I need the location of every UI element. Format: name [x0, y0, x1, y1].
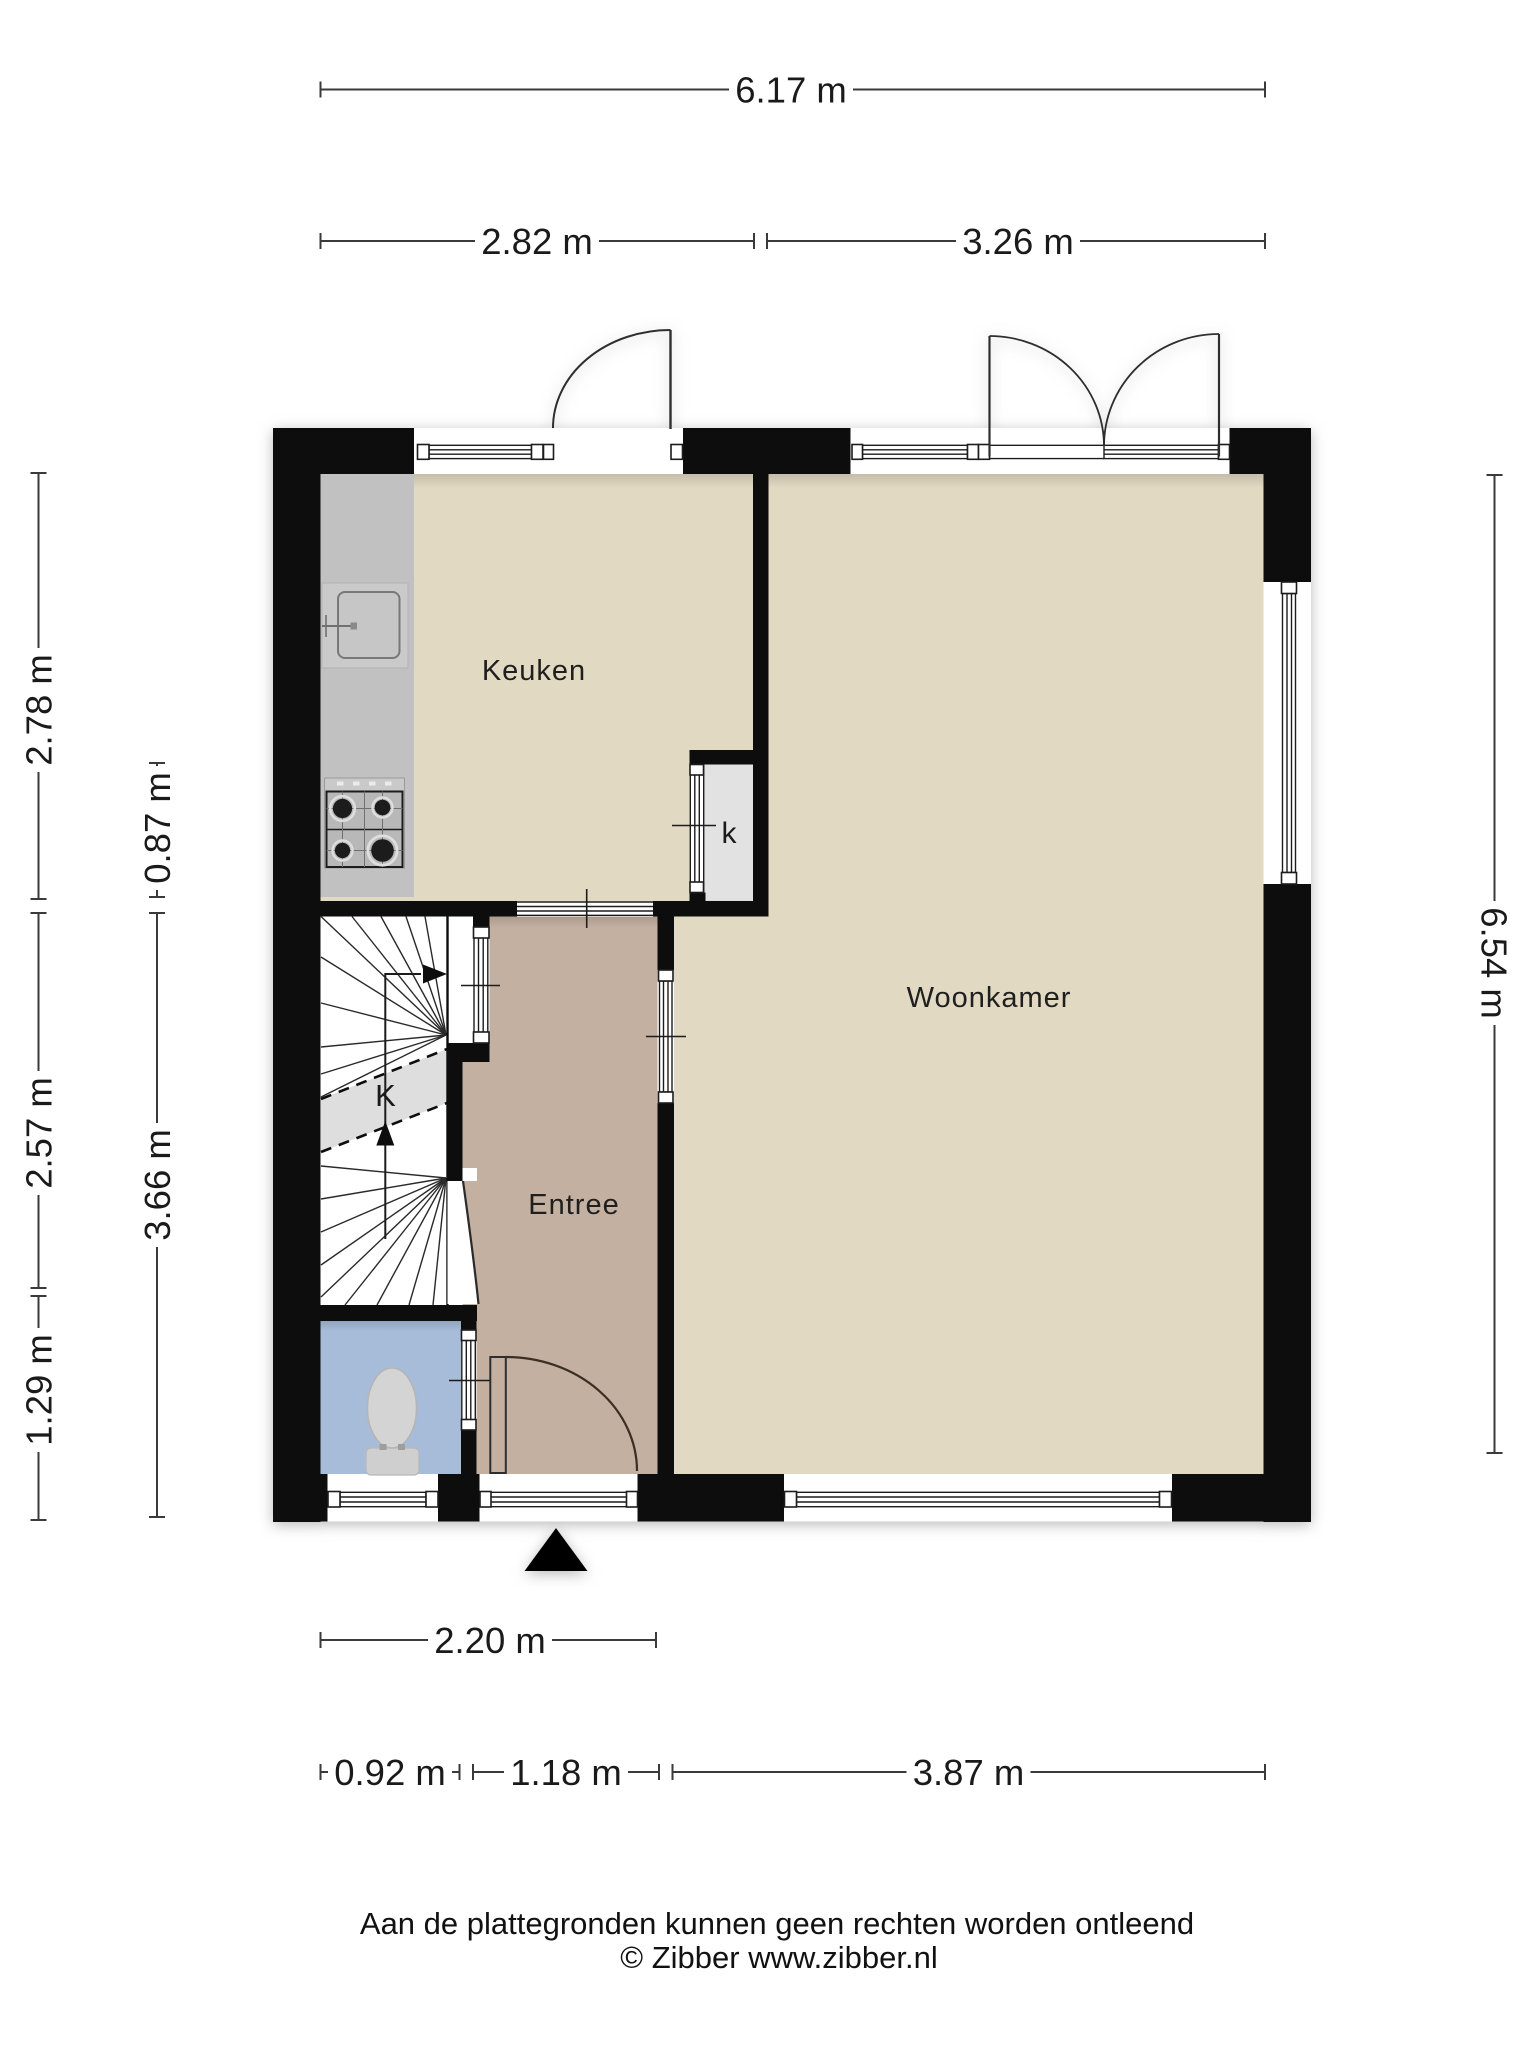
svg-text:Aan de plattegronden kunnen ge: Aan de plattegronden kunnen geen rechten… — [360, 1906, 1194, 1941]
svg-text:Entree: Entree — [528, 1189, 619, 1221]
svg-text:3.26 m: 3.26 m — [962, 221, 1074, 262]
svg-text:k: k — [722, 817, 738, 850]
svg-text:6.54 m: 6.54 m — [1474, 907, 1515, 1019]
svg-text:6.17 m: 6.17 m — [735, 70, 847, 111]
svg-text:Keuken: Keuken — [482, 655, 586, 687]
svg-text:0.87 m: 0.87 m — [137, 772, 178, 884]
svg-text:2.20 m: 2.20 m — [434, 1620, 546, 1661]
svg-text:3.87 m: 3.87 m — [913, 1752, 1025, 1793]
svg-text:0.92 m: 0.92 m — [334, 1752, 446, 1793]
svg-text:2.78 m: 2.78 m — [19, 654, 60, 766]
svg-text:1.18 m: 1.18 m — [510, 1752, 622, 1793]
svg-text:Woonkamer: Woonkamer — [907, 982, 1072, 1014]
svg-text:3.66 m: 3.66 m — [137, 1129, 178, 1241]
svg-text:© Zibber www.zibber.nl: © Zibber www.zibber.nl — [620, 1940, 937, 1975]
svg-text:2.57 m: 2.57 m — [19, 1077, 60, 1189]
svg-text:K: K — [375, 1078, 397, 1113]
svg-text:2.82 m: 2.82 m — [481, 221, 593, 262]
svg-text:1.29 m: 1.29 m — [19, 1334, 60, 1446]
